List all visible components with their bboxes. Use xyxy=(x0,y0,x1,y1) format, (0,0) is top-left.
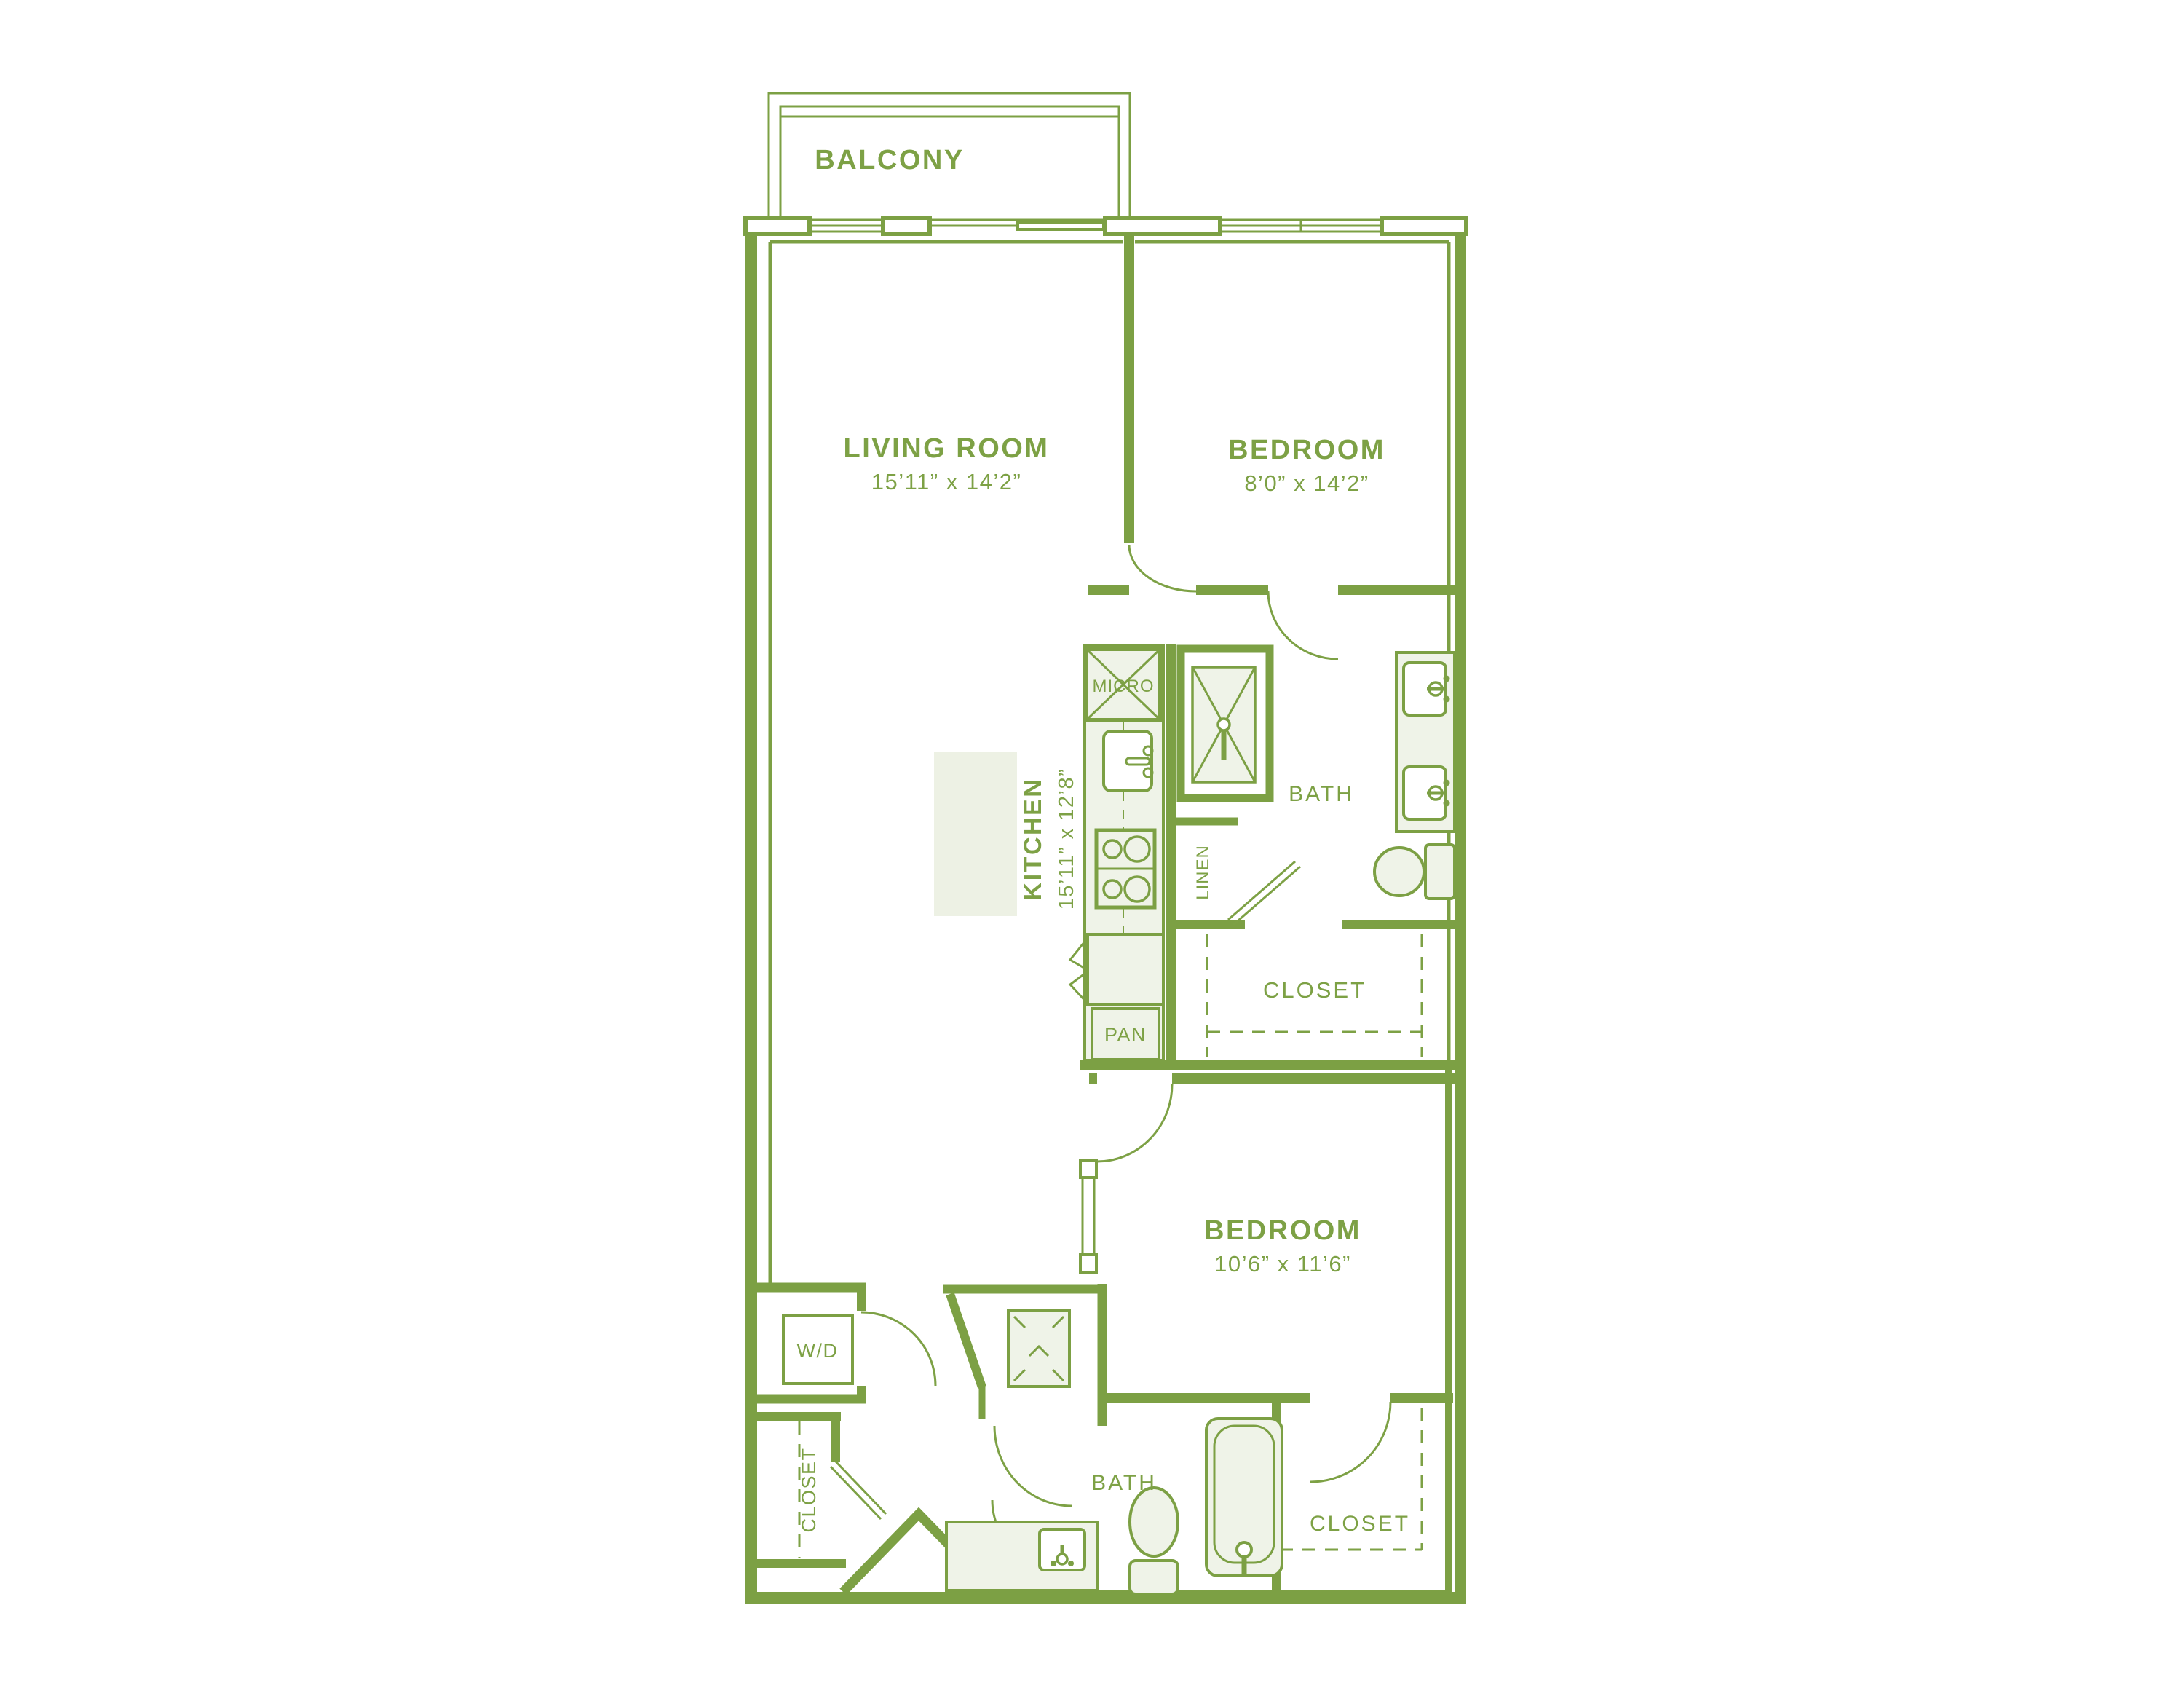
closet-bottom-label: CLOSET xyxy=(1310,1512,1410,1536)
bedroom-bottom-label: BEDROOM xyxy=(1204,1215,1361,1246)
window-living xyxy=(810,220,883,232)
floor-plan-svg: BALCONY LIVING ROOM 15’11” x 14’2” BEDRO… xyxy=(0,0,2184,1688)
linen-door-leaf xyxy=(1228,861,1300,925)
closet-bottom-door-arc xyxy=(1310,1402,1390,1482)
living-room-label: LIVING ROOM xyxy=(844,433,1050,464)
stove xyxy=(1096,830,1155,907)
bedroom-bottom-dims: 10’6” x 11’6” xyxy=(1214,1251,1351,1277)
toilet-bottom xyxy=(1130,1488,1178,1594)
balcony-label: BALCONY xyxy=(815,145,964,175)
bedroom-bottom-door-arc xyxy=(1097,1084,1172,1162)
bathtub xyxy=(1206,1419,1282,1576)
micro-label: MICRO xyxy=(1093,677,1155,696)
bath-bottom-door-arc xyxy=(994,1426,1072,1506)
wd-label: W/D xyxy=(797,1340,839,1362)
kitchen-fixtures xyxy=(934,645,1163,1060)
bedroom-top-door-arc xyxy=(1129,545,1196,591)
bath-top-label: BATH xyxy=(1289,782,1354,806)
double-vanity xyxy=(1396,652,1455,832)
bedroom-top-dims: 8’0” x 14’2” xyxy=(1244,470,1369,496)
vanity-bottom xyxy=(946,1522,1098,1590)
floor-plan-page: BALCONY LIVING ROOM 15’11” x 14’2” BEDRO… xyxy=(0,0,2184,1688)
wd-door-arc xyxy=(861,1312,935,1386)
bath-bottom-fixtures xyxy=(946,1311,1282,1594)
kitchen-dims: 15’11” x 12’8” xyxy=(1055,768,1078,910)
bath-top-fixtures xyxy=(1181,649,1455,899)
bath-top-door-arc xyxy=(1268,591,1338,659)
toilet-top xyxy=(1374,845,1455,899)
pan-label: PAN xyxy=(1104,1024,1147,1046)
shower-top xyxy=(1181,649,1270,798)
shower-bottom xyxy=(1008,1311,1069,1387)
bedroom-top-label: BEDROOM xyxy=(1228,435,1385,465)
kitchen-label: KITCHEN xyxy=(1019,778,1047,901)
entry-closet-door-leaf xyxy=(831,1462,886,1519)
window-bedroom-top xyxy=(1220,220,1382,232)
closet-entry-label: CLOSET xyxy=(798,1447,820,1532)
kitchen-island xyxy=(934,752,1017,916)
linen-label: LINEN xyxy=(1193,845,1213,900)
bath-bottom-label: BATH xyxy=(1091,1471,1157,1495)
top-wall xyxy=(745,218,1466,234)
closet-top-label: CLOSET xyxy=(1263,977,1366,1003)
living-room-dims: 15’11” x 14’2” xyxy=(871,469,1022,494)
kitchen-sink xyxy=(1104,731,1152,791)
